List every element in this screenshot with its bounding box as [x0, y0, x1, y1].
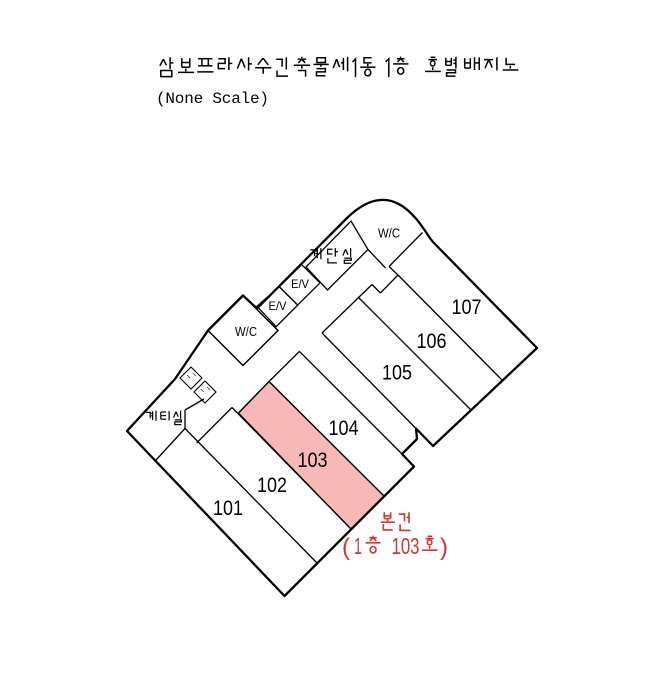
svg-text:): ): [440, 534, 448, 561]
svg-text:106: 106: [417, 330, 447, 353]
svg-text:(: (: [342, 534, 350, 561]
svg-text:103: 103: [298, 449, 328, 472]
svg-text:W/C: W/C: [378, 226, 400, 241]
svg-text:104: 104: [329, 417, 359, 440]
svg-text:E/V: E/V: [291, 277, 309, 291]
svg-text:W/C: W/C: [235, 324, 257, 339]
svg-text:(None Scale): (None Scale): [156, 90, 269, 108]
svg-text:105: 105: [382, 362, 412, 385]
svg-text:1: 1: [354, 533, 362, 559]
svg-text:E/V: E/V: [269, 299, 287, 313]
svg-text:103: 103: [392, 533, 420, 559]
svg-text:101: 101: [213, 497, 243, 520]
svg-text:107: 107: [452, 296, 482, 319]
svg-text:102: 102: [257, 474, 287, 497]
